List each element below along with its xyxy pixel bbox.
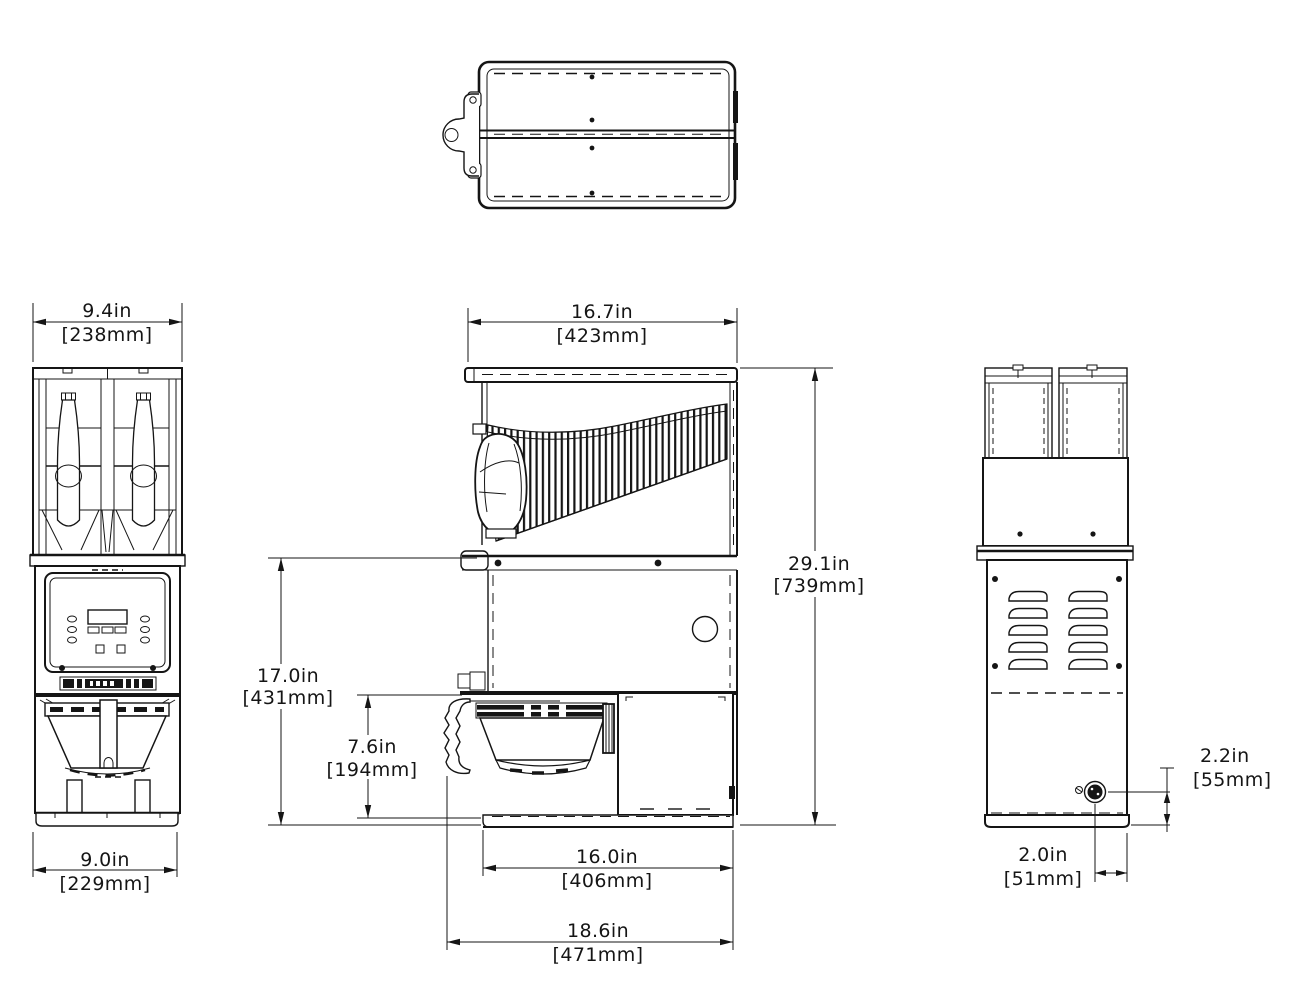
dim-overall-depth-mm: [471mm]: [553, 944, 644, 966]
drawing-page: 9.4in [238mm] 9.0in [229mm]: [0, 0, 1300, 1001]
dim-hopper-width-mm: [238mm]: [62, 324, 153, 346]
front-body: [35, 566, 180, 826]
rear-view: [977, 365, 1133, 827]
front-leg: [67, 780, 82, 813]
dim-counter-height-in: 17.0in: [257, 665, 319, 687]
dim-overall-height: 29.1in [739mm]: [740, 368, 867, 825]
rear-screw: [992, 576, 998, 582]
top-view: [443, 62, 738, 208]
body-screw: [495, 560, 502, 567]
rear-base: [985, 815, 1129, 827]
side-funnel: [444, 699, 614, 774]
dim-cord-height-mm: [55mm]: [1193, 769, 1271, 791]
dim-base-depth-mm: [406mm]: [562, 870, 653, 892]
body-screw: [655, 560, 662, 567]
dim-base-width: 9.0in [229mm]: [33, 832, 177, 895]
dim-cord-height-in: 2.2in: [1200, 745, 1250, 767]
dim-funnel-clearance-in: 7.6in: [347, 736, 397, 758]
rear-hoppers: [985, 365, 1127, 460]
hopper-base-lip: [30, 555, 185, 566]
hopper-lid-pin: [1013, 365, 1023, 370]
top-handle: [443, 92, 481, 178]
dim-overall-height-mm: [739mm]: [774, 575, 865, 597]
front-hoppers: [30, 368, 185, 566]
dimension-drawing-canvas: 9.4in [238mm] 9.0in [229mm]: [0, 0, 1300, 1001]
power-cord-inlet: [1085, 782, 1106, 803]
dim-cord-offset-in: 2.0in: [1018, 844, 1068, 866]
dim-overall-height-in: 29.1in: [788, 553, 850, 575]
dim-cord-height: 2.2in [55mm]: [1108, 745, 1271, 832]
dim-base-depth-in: 16.0in: [576, 846, 638, 868]
rear-foot-tab: [729, 786, 735, 799]
control-panel: [45, 573, 170, 672]
funnel-handle: [444, 699, 470, 774]
dispense-shelf-edge: [35, 693, 180, 697]
dim-top-depth-in: 16.7in: [571, 301, 633, 323]
dim-hopper-width-in: 9.4in: [82, 300, 132, 322]
dim-base-width-in: 9.0in: [80, 849, 130, 871]
side-view: [444, 368, 737, 827]
dim-overall-depth-in: 18.6in: [567, 920, 629, 942]
dim-cord-offset-mm: [51mm]: [1004, 868, 1082, 890]
grind-knob: [693, 617, 718, 642]
dim-top-depth: 16.7in [423mm]: [468, 301, 737, 363]
dim-top-depth-mm: [423mm]: [557, 325, 648, 347]
rear-lower-housing: [985, 560, 1129, 827]
panel-screw: [59, 665, 65, 671]
front-leg: [135, 780, 150, 813]
dim-counter-height-mm: [431mm]: [243, 687, 334, 709]
dim-funnel-clearance-mm: [194mm]: [327, 759, 418, 781]
front-view: [30, 368, 185, 826]
rear-screw: [992, 663, 998, 669]
dim-hopper-width: 9.4in [238mm]: [33, 300, 182, 362]
side-hopper: [465, 368, 737, 556]
hopper-lid-pin: [1087, 365, 1097, 370]
rear-screw: [1116, 663, 1122, 669]
rear-screw: [1116, 576, 1122, 582]
dim-counter-height: 17.0in [431mm]: [243, 558, 481, 825]
rear-upper-housing: [977, 458, 1133, 560]
dim-base-width-mm: [229mm]: [60, 873, 151, 895]
top-outer-shell: [479, 62, 735, 208]
rear-lip: [977, 546, 1133, 560]
panel-screw: [150, 665, 156, 671]
funnel-rail-mount: [470, 672, 485, 690]
